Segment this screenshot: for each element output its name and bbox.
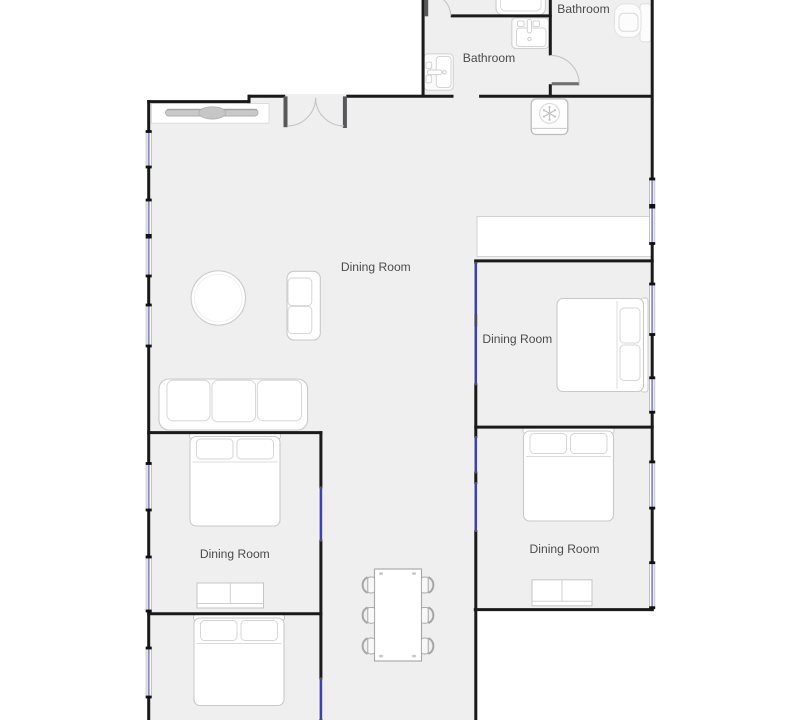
svg-text:Dining Room: Dining Room [200,547,270,561]
svg-text:Bathroom: Bathroom [557,2,609,16]
svg-text:Dining Room: Dining Room [530,542,600,556]
svg-text:Dining Room: Dining Room [482,332,552,346]
svg-text:Dining Room: Dining Room [341,260,411,274]
svg-text:Bathroom: Bathroom [463,51,515,65]
